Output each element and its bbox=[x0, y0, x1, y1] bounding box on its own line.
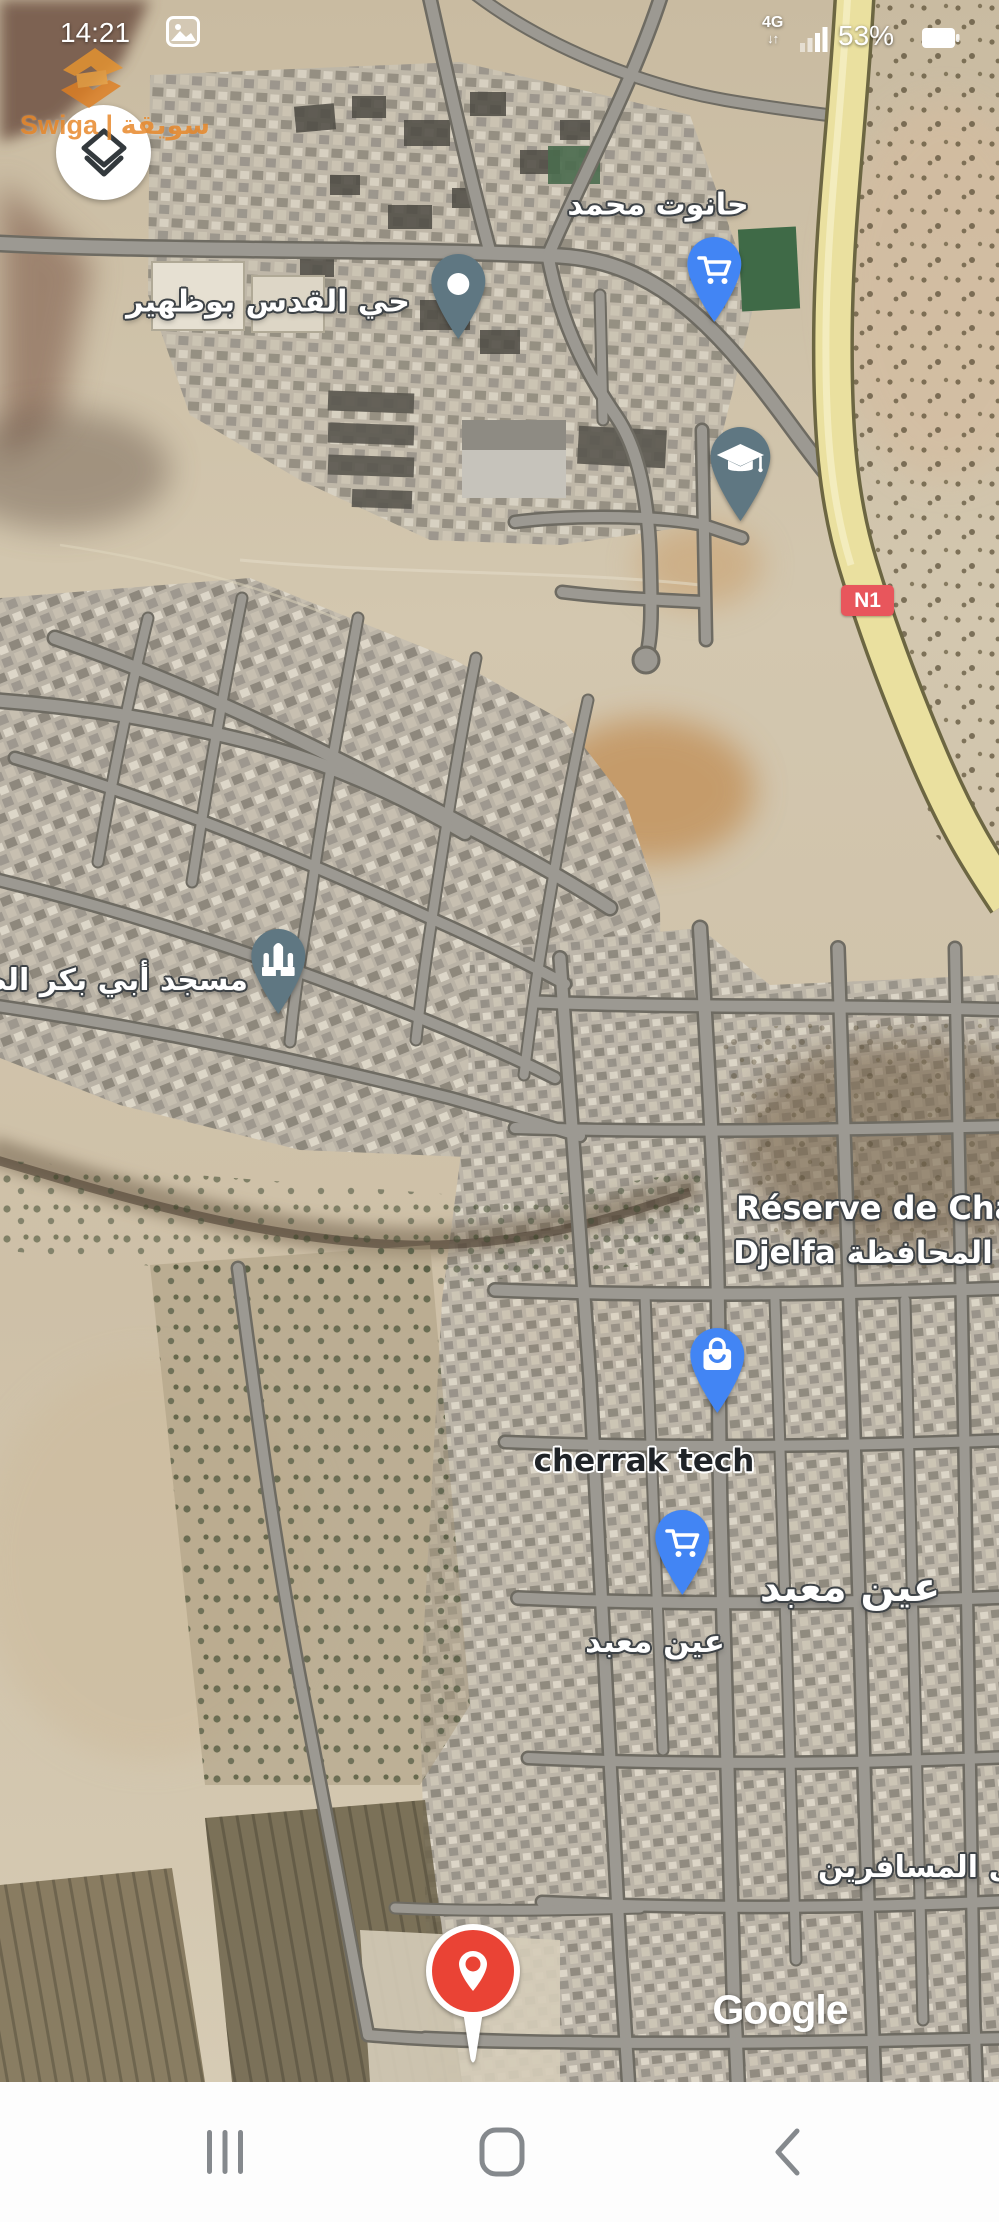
school-pin[interactable] bbox=[689, 427, 792, 530]
shop-cart-pin-ain-maabed[interactable] bbox=[636, 1510, 729, 1603]
battery-icon bbox=[922, 27, 960, 49]
back-icon bbox=[771, 2127, 801, 2177]
shop-bag-pin-cherrak[interactable] bbox=[671, 1328, 764, 1421]
network-arrows-icon: ↓↑ bbox=[767, 31, 778, 46]
home-button[interactable] bbox=[442, 2082, 562, 2222]
map-layers-button[interactable] bbox=[56, 105, 151, 200]
shop-cart-pin-hanout[interactable] bbox=[668, 237, 761, 330]
signal-bars-icon bbox=[800, 26, 830, 52]
network-indicator: 4G ↓↑ bbox=[762, 15, 783, 47]
photo-icon bbox=[166, 16, 200, 47]
battery-percent: 53% bbox=[838, 20, 894, 52]
android-nav-bar bbox=[0, 2082, 999, 2222]
home-icon bbox=[479, 2127, 525, 2177]
mosque-pin[interactable] bbox=[232, 929, 325, 1022]
neighborhood-pin-qods[interactable] bbox=[412, 254, 505, 347]
map[interactable]: حانوت محمد حي القدس بوظهير مسجد أبي بكر … bbox=[0, 0, 999, 2082]
recents-button[interactable] bbox=[165, 2082, 285, 2222]
recents-icon bbox=[205, 2128, 245, 2176]
layers-icon bbox=[78, 127, 130, 179]
network-type: 4G bbox=[762, 14, 783, 31]
status-bar: 14:21 4G ↓↑ 53% bbox=[0, 0, 999, 64]
clock: 14:21 bbox=[60, 17, 130, 49]
google-logo: Google bbox=[712, 1987, 847, 2034]
dot-icon bbox=[447, 273, 469, 295]
back-button[interactable] bbox=[726, 2082, 846, 2222]
route-badge-n1: N1 bbox=[841, 585, 894, 616]
phone-screen: حانوت محمد حي القدس بوظهير مسجد أبي بكر … bbox=[0, 0, 999, 2222]
destination-pin[interactable] bbox=[418, 1919, 528, 2069]
route-badge-label: N1 bbox=[854, 589, 881, 613]
